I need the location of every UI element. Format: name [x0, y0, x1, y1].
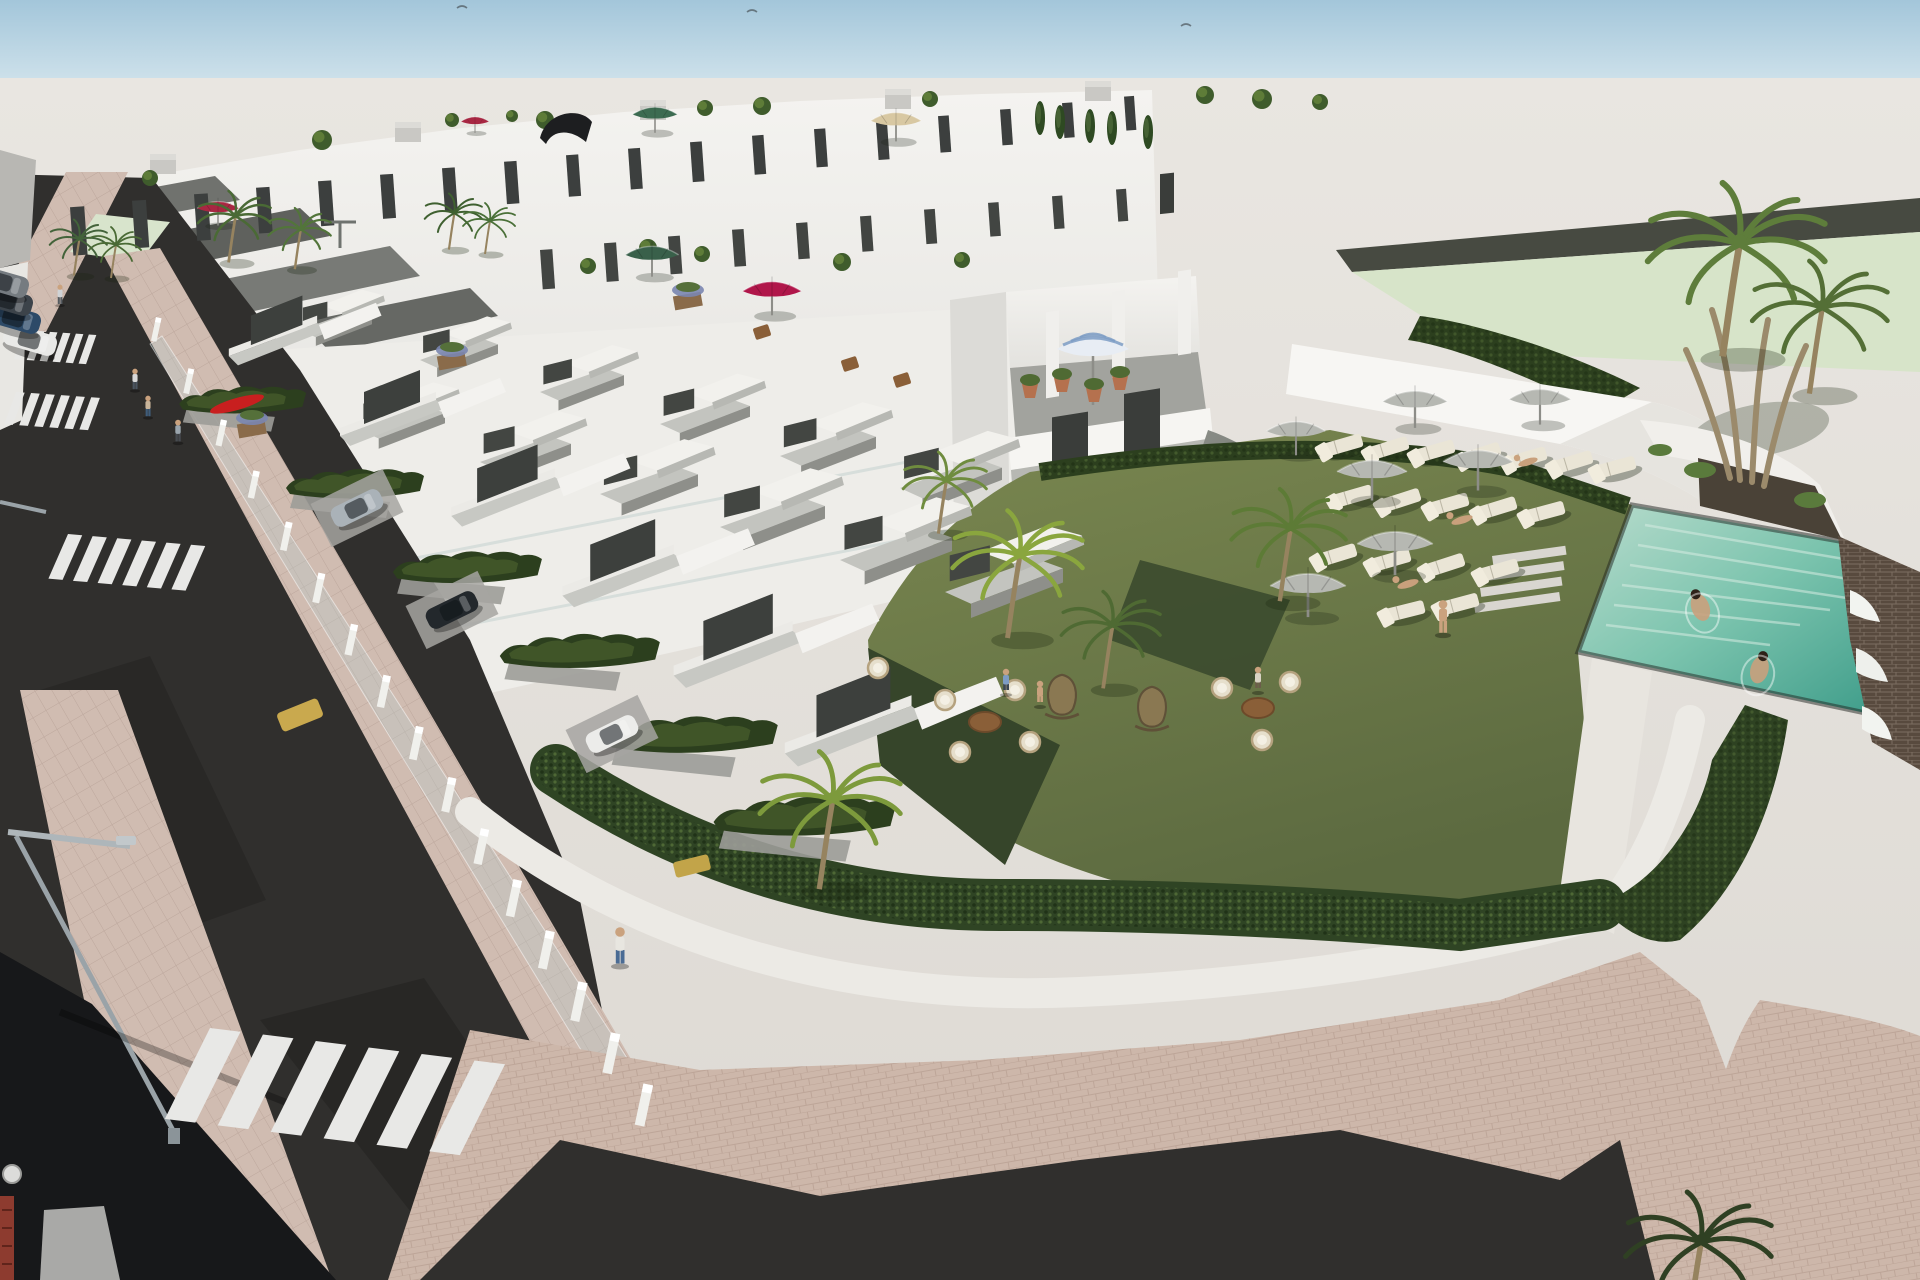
roof-plant-light — [1197, 87, 1207, 97]
roof-plant-light — [581, 259, 590, 268]
planter-greens — [440, 342, 464, 352]
rattan-chair — [950, 742, 970, 762]
chimney-cap — [150, 154, 176, 160]
cypress-light — [1144, 118, 1149, 138]
roof-plant-light — [314, 132, 325, 143]
cypress-light — [1036, 104, 1041, 124]
roof-plant-light — [537, 112, 547, 122]
roof-plant-light — [1313, 95, 1322, 104]
roof-plant-light — [923, 92, 932, 101]
pot-plant — [1110, 366, 1130, 378]
pot-plant — [1052, 368, 1072, 380]
rattan-chair — [1280, 672, 1300, 692]
roof-plant-light — [834, 254, 844, 264]
roof-plant-light — [955, 253, 964, 262]
rattan-chair — [868, 658, 888, 678]
cypress-light — [1086, 112, 1091, 132]
roof-plant-light — [507, 111, 514, 118]
cypress-light — [1108, 114, 1113, 134]
roof-plant-light — [754, 98, 764, 108]
chimney-cap — [640, 100, 666, 106]
rattan-chair — [935, 690, 955, 710]
chimney — [395, 126, 421, 142]
roof-plant-light — [695, 247, 704, 256]
chimney-cap — [1085, 81, 1111, 87]
planter-greens — [240, 410, 264, 420]
planter-greens — [676, 282, 700, 292]
chimney — [1085, 85, 1111, 101]
pot-plant — [1084, 378, 1104, 390]
round-table — [1242, 698, 1274, 718]
round-table — [969, 712, 1001, 732]
cypress-light — [1056, 108, 1061, 128]
pot-plant — [1020, 374, 1040, 386]
rattan-chair — [1212, 678, 1232, 698]
rattan-chair — [1020, 732, 1040, 752]
rattan-chair — [1252, 730, 1272, 750]
render-canvas — [0, 0, 1920, 1280]
chimney — [885, 93, 911, 109]
sky — [0, 0, 1920, 84]
chimney-cap — [885, 89, 911, 95]
chimney-cap — [395, 122, 421, 128]
roof-plant-light — [143, 171, 152, 180]
roof-plant-light — [698, 101, 707, 110]
roof-plant-light — [1254, 91, 1265, 102]
roof-plant-light — [446, 114, 454, 122]
